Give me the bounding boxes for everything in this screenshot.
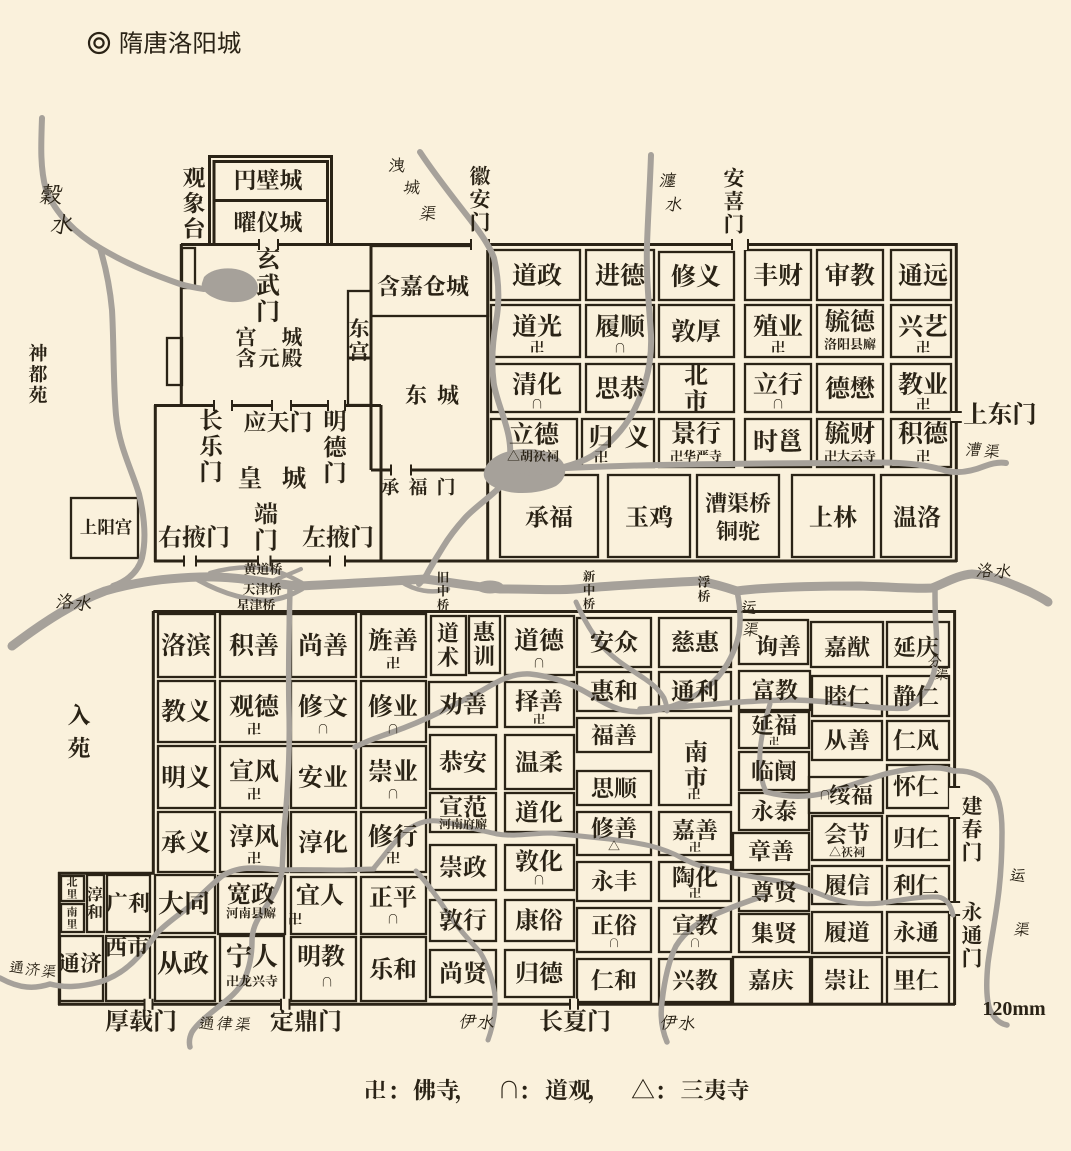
- svg-text:120mm: 120mm: [982, 998, 1046, 1020]
